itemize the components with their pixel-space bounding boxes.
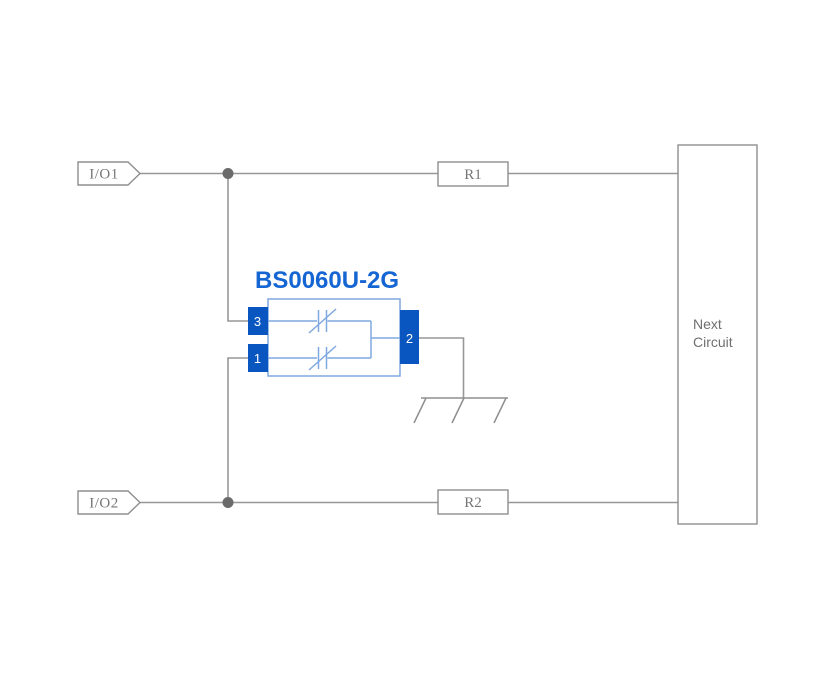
esd-protection-component: 3 1 2 BS0060U-2G	[248, 267, 419, 376]
ground-slash	[494, 398, 506, 423]
pin3-number: 3	[254, 314, 261, 329]
io2-label: I/O2	[89, 496, 119, 512]
ground-slash	[452, 398, 464, 423]
wire-pin2-to-ground	[419, 338, 464, 398]
wire-branch-to-pin1	[228, 358, 248, 503]
schematic-canvas: I/O1 I/O2 R1 R2 Next Circuit	[0, 0, 832, 675]
io1-label: I/O1	[89, 167, 119, 183]
resistor-r1-label: R1	[464, 167, 482, 183]
ground-icon	[414, 398, 508, 423]
resistor-r2-label: R2	[464, 495, 482, 511]
wire-branch-to-pin3	[228, 174, 248, 322]
pin1-number: 1	[254, 351, 261, 366]
next-circuit-label-line1: Next	[693, 316, 722, 332]
junction-dot-icon	[223, 168, 234, 179]
ground-slash	[414, 398, 426, 423]
next-circuit-label-line2: Circuit	[693, 334, 733, 350]
junction-dot-icon	[223, 497, 234, 508]
part-title: BS0060U-2G	[255, 267, 399, 294]
circuit-diagram: I/O1 I/O2 R1 R2 Next Circuit	[0, 0, 832, 675]
pin2-number: 2	[406, 331, 413, 346]
